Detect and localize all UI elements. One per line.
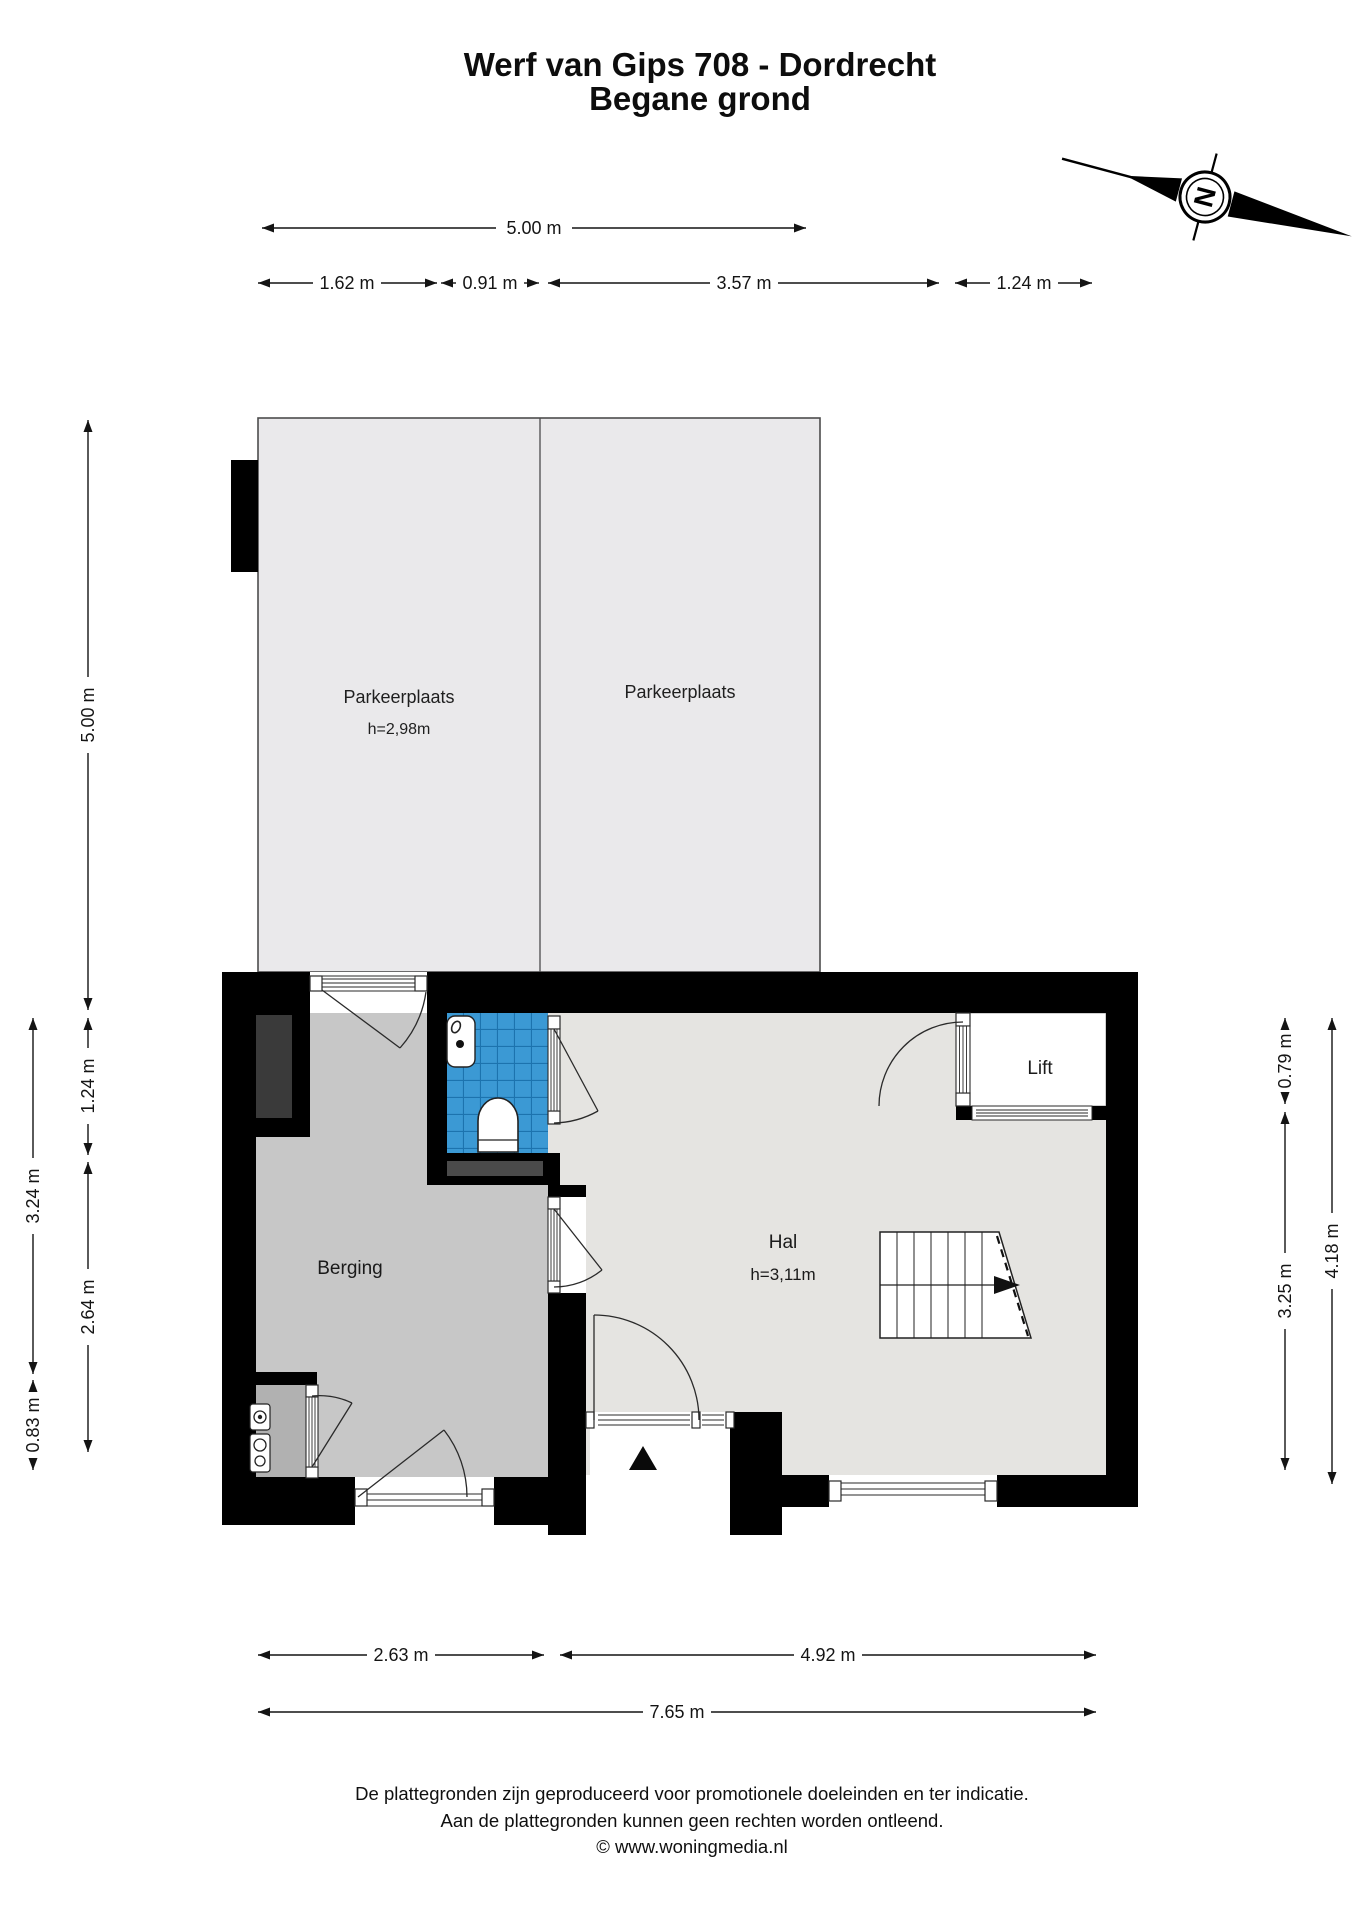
berging-label: Berging — [317, 1258, 383, 1279]
parking-outline — [258, 418, 820, 972]
page-title: Werf van Gips 708 - Dordrecht Begane gro… — [464, 46, 937, 117]
footer-line-3: © www.woningmedia.nl — [596, 1836, 788, 1857]
dim-label: 4.92 m — [800, 1645, 855, 1665]
footer-line-2: Aan de plattegronden kunnen geen rechten… — [441, 1810, 944, 1831]
entrance-porch — [590, 1412, 730, 1535]
parking-left-label: Parkeerplaats — [343, 687, 454, 707]
dimension-top-row2: 1.62 m 0.91 m 3.57 m 1.24 m — [258, 273, 1092, 293]
title-line-1: Werf van Gips 708 - Dordrecht — [464, 46, 937, 83]
dimension-right-inner: 0.79 m 3.25 m — [1275, 1018, 1295, 1470]
nook-top-wall — [256, 1372, 317, 1385]
footer-disclaimer: De plattegronden zijn geproduceerd voor … — [355, 1783, 1029, 1857]
dimension-top-total: 5.00 m — [262, 218, 806, 238]
dim-label: 1.62 m — [319, 273, 374, 293]
dim-label: 1.24 m — [78, 1058, 98, 1113]
dim-label: 7.65 m — [649, 1702, 704, 1722]
washing-machine-icon — [250, 1404, 270, 1430]
dim-label: 3.57 m — [716, 273, 771, 293]
dim-label: 0.83 m — [23, 1397, 43, 1452]
dim-label: 1.24 m — [996, 273, 1051, 293]
dimension-left-inner: 5.00 m 1.24 m 2.64 m — [78, 420, 98, 1452]
toilet-shaft — [447, 1161, 543, 1176]
parking-right-label: Parkeerplaats — [624, 682, 735, 702]
dimension-bottom-row: 2.63 m 4.92 m — [258, 1645, 1096, 1665]
toilet-left-wall — [427, 1013, 447, 1153]
sink-icon — [447, 1016, 475, 1067]
dimension-bottom-total: 7.65 m — [258, 1702, 1096, 1722]
dim-label: 5.00 m — [506, 218, 561, 238]
parking-wall-stub — [231, 460, 258, 572]
lift-label: Lift — [1027, 1058, 1053, 1079]
parking-area: Parkeerplaats h=2,98m Parkeerplaats — [231, 418, 820, 972]
porch-right-wall — [730, 1412, 782, 1535]
floorplan-page: Werf van Gips 708 - Dordrecht Begane gro… — [0, 0, 1358, 1920]
toilet-icon — [478, 1098, 518, 1152]
dimension-left-outer: 3.24 m 0.83 m — [23, 1018, 43, 1470]
dim-label: 0.79 m — [1275, 1033, 1295, 1088]
dim-label: 3.24 m — [23, 1168, 43, 1223]
dim-label: 2.63 m — [373, 1645, 428, 1665]
hal-window — [829, 1475, 997, 1507]
right-wall — [1106, 972, 1138, 1507]
dimension-right-outer: 4.18 m — [1322, 1018, 1342, 1484]
dryer-icon — [250, 1434, 270, 1472]
footer-line-1: De plattegronden zijn geproduceerd voor … — [355, 1783, 1029, 1804]
dim-label: 5.00 m — [78, 687, 98, 742]
cabinet — [256, 1015, 292, 1118]
dim-label: 0.91 m — [462, 273, 517, 293]
hal-height-label: h=3,11m — [750, 1265, 815, 1284]
dim-label: 2.64 m — [78, 1279, 98, 1334]
parking-left-height: h=2,98m — [368, 721, 431, 738]
dim-label: 3.25 m — [1275, 1263, 1295, 1318]
hal-label: Hal — [769, 1232, 798, 1253]
title-line-2: Begane grond — [589, 80, 811, 117]
dim-label: 4.18 m — [1322, 1223, 1342, 1278]
north-compass-icon: N — [1050, 115, 1358, 280]
